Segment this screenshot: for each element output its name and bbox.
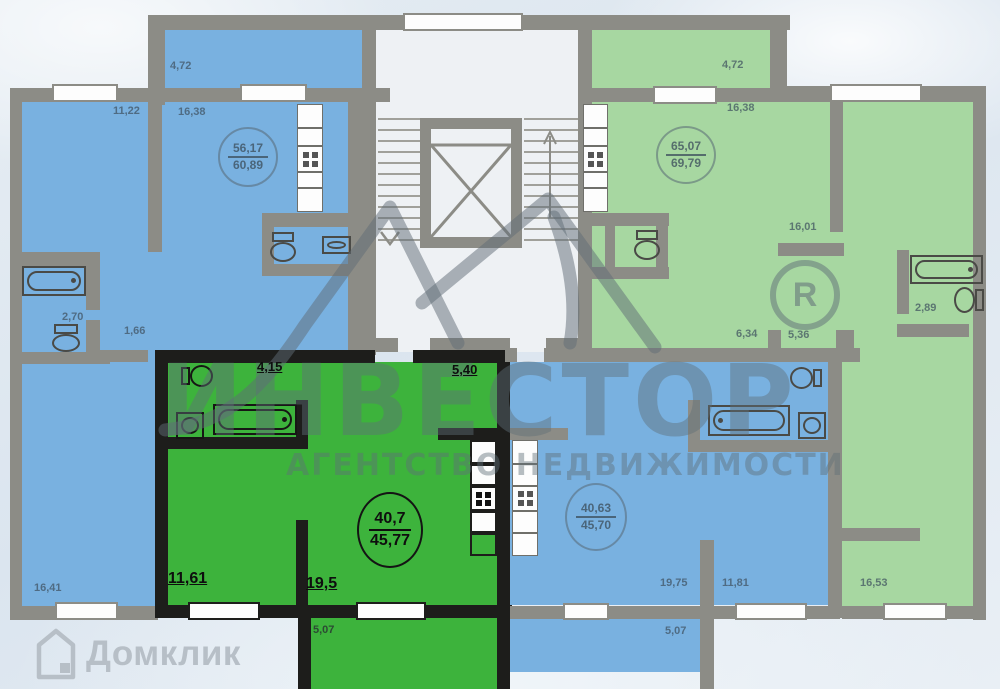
window (55, 602, 118, 620)
kitchen-sink-icon (297, 188, 323, 212)
floorplan-scene: 4,72 11,22 16,38 2,70 1,66 16,41 56,17 6… (0, 0, 1000, 689)
window (188, 602, 260, 620)
apartment-area-badge: 40,63 45,70 (565, 483, 627, 551)
area-label: 19,75 (660, 577, 688, 589)
area-label: 5,07 (665, 625, 686, 637)
area-label-selected: 5,07 (313, 624, 334, 636)
apartment-area-badge: 65,07 69,79 (656, 126, 716, 184)
area-label-selected: 5,40 (452, 362, 477, 377)
bathtub-icon (213, 404, 297, 435)
kitchen-counter (512, 440, 538, 464)
wall-segment (830, 102, 843, 232)
area-total: 65,07 (666, 139, 706, 156)
elevator-cab (431, 129, 511, 237)
window (563, 603, 609, 620)
wall-segment (148, 102, 162, 252)
wall-segment (262, 213, 352, 227)
area-label-selected: 19,5 (306, 575, 337, 593)
apartment-area-badge-selected: 40,7 45,77 (357, 492, 423, 568)
toilet-icon (790, 367, 822, 389)
kitchen-sink-icon (583, 188, 608, 212)
area-label: 5,36 (788, 329, 809, 341)
wall-segment (578, 15, 790, 30)
wall-segment (376, 338, 398, 352)
wall-segment (842, 528, 920, 541)
wall-segment (836, 330, 854, 353)
apartment-right-strip[interactable] (842, 348, 973, 606)
area-label: 16,38 (178, 106, 206, 118)
window (356, 602, 426, 620)
apartment-selected-balcony[interactable] (310, 618, 497, 689)
sink-icon (176, 412, 204, 439)
domclick-logo: Домклик (36, 628, 241, 680)
kitchen-counter (583, 128, 608, 146)
area-label: 11,22 (113, 105, 140, 117)
kitchen-counter (583, 172, 608, 188)
area-label: 11,81 (722, 577, 749, 589)
wall-segment (698, 440, 828, 452)
window (830, 84, 922, 102)
toilet-icon (954, 287, 984, 313)
toilet-icon (181, 365, 213, 387)
area-label-selected: 4,15 (257, 359, 282, 374)
area-label: 1,66 (124, 325, 145, 337)
toilet-icon (52, 324, 80, 352)
wall-segment (510, 428, 568, 440)
bathtub-icon (22, 266, 86, 296)
area-with-balcony: 45,70 (581, 518, 611, 533)
area-label: 4,72 (170, 60, 191, 72)
wall-segment (298, 618, 311, 689)
kitchen-counter (297, 104, 323, 128)
wall-segment (262, 264, 352, 276)
wall-segment (155, 350, 168, 618)
wall-segment (100, 350, 148, 362)
apartment-selected-region[interactable] (167, 362, 497, 605)
apartment-area-badge: 56,17 60,89 (218, 127, 278, 187)
stove-icon (470, 486, 497, 511)
kitchen-counter (470, 511, 497, 533)
wall-segment (700, 606, 714, 689)
wall-segment (86, 252, 100, 310)
wall-segment (148, 15, 388, 30)
window (735, 603, 807, 620)
wall-segment (897, 250, 909, 314)
area-label: 4,72 (722, 59, 743, 71)
window (883, 603, 947, 620)
apartment-left-balcony[interactable] (165, 30, 388, 88)
domclick-wordmark: Домклик (86, 634, 241, 674)
area-total: 40,7 (369, 509, 410, 531)
kitchen-counter (470, 464, 497, 486)
wall-segment (296, 520, 308, 618)
kitchen-counter (583, 104, 608, 128)
area-with-balcony: 69,79 (671, 156, 701, 171)
kitchen-counter (512, 533, 538, 556)
area-label: 2,70 (62, 311, 83, 323)
kitchen-counter (512, 511, 538, 533)
toilet-icon (270, 232, 296, 262)
wall-segment (778, 243, 844, 256)
area-label: 16,01 (789, 221, 817, 233)
wall-segment (505, 348, 517, 362)
stove-icon (512, 486, 538, 511)
kitchen-counter (470, 533, 497, 556)
wall-segment (768, 330, 781, 351)
wall-segment (544, 348, 860, 362)
area-total: 40,63 (576, 501, 616, 518)
wall-segment (828, 362, 842, 618)
bathtub-icon (708, 405, 790, 436)
wall-segment (438, 428, 497, 440)
stairs-down-marker-icon (378, 228, 402, 248)
wall-segment (18, 352, 110, 364)
area-label: 2,89 (915, 302, 936, 314)
wall-segment (700, 540, 714, 618)
apartment-left-room-bottom[interactable] (22, 350, 155, 606)
apartment-middle-region[interactable] (510, 362, 828, 605)
stove-icon (297, 146, 323, 172)
area-label-selected: 11,61 (168, 570, 207, 588)
wall-segment (497, 350, 510, 689)
sink-icon (798, 412, 826, 439)
area-total: 56,17 (228, 141, 268, 158)
kitchen-counter (470, 440, 497, 464)
kitchen-counter (297, 128, 323, 146)
elevator-x-icon (431, 129, 511, 237)
bathtub-icon (910, 255, 983, 284)
area-label: 16,38 (727, 102, 755, 114)
window (240, 84, 307, 102)
stairs-up-arrow-icon (542, 128, 558, 220)
stove-icon (583, 146, 608, 172)
area-with-balcony: 60,89 (233, 158, 263, 173)
area-label: 16,53 (860, 577, 888, 589)
wall-segment (605, 225, 615, 269)
area-label: 6,34 (736, 328, 757, 340)
toilet-icon (634, 230, 660, 260)
house-icon (36, 628, 76, 680)
wall-segment (362, 15, 376, 355)
window (52, 84, 118, 102)
wall-segment (897, 324, 969, 337)
wall-segment (973, 86, 986, 620)
area-with-balcony: 45,77 (370, 531, 410, 551)
sink-icon (322, 236, 351, 254)
wall-segment (688, 400, 700, 452)
kitchen-counter (297, 172, 323, 188)
kitchen-counter (512, 464, 538, 486)
window (403, 13, 523, 31)
wall-segment (296, 400, 308, 449)
area-label: 16,41 (34, 582, 62, 594)
window (653, 86, 717, 104)
